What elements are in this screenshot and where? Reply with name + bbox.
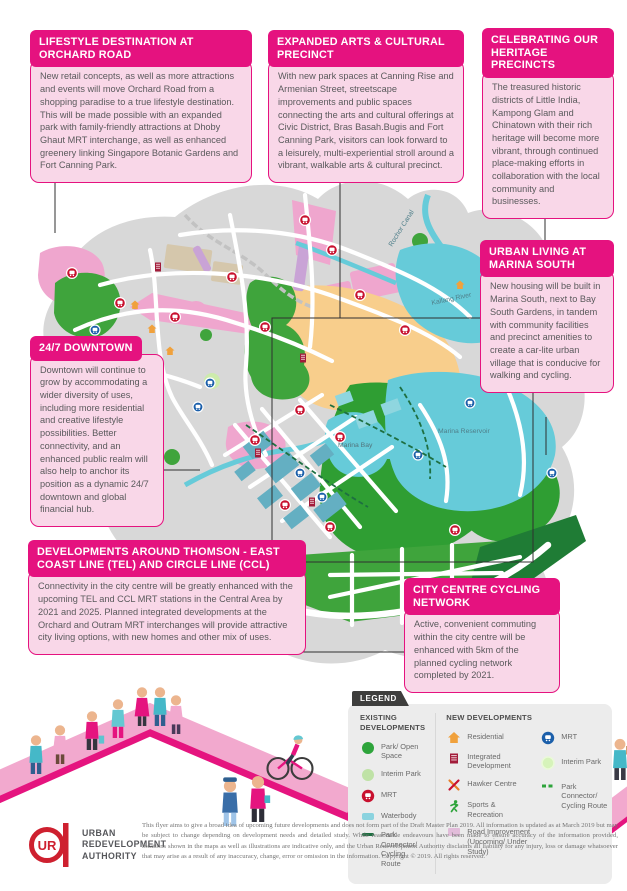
svg-text:UR: UR [38, 838, 57, 853]
callout-cycling-title: CITY CENTRE CYCLING NETWORK [404, 578, 560, 615]
legend-label: Interim Park [561, 755, 601, 767]
mrt-new-icon [540, 730, 556, 745]
callout-tel-ccl-body: Connectivity in the city centre will be … [28, 570, 306, 654]
callout-cycling: CITY CENTRE CYCLING NETWORK Active, conv… [404, 578, 560, 693]
callout-tel-ccl: DEVELOPMENTS AROUND THOMSON - EAST COAST… [28, 540, 306, 655]
callout-downtown: 24/7 DOWNTOWN Downtown will continue to … [30, 336, 164, 527]
legend-new-heading: NEW DEVELOPMENTS [446, 713, 612, 723]
legend-label: Hawker Centre [467, 777, 516, 789]
callout-heritage-body: The treasured historic districts of Litt… [482, 71, 614, 219]
ura-logo-mark: UR [28, 820, 74, 870]
police-officer-illustration [222, 777, 238, 826]
park-open-space-icon [360, 740, 376, 755]
callout-arts-title: EXPANDED ARTS & CULTURAL PRECINCT [268, 30, 464, 67]
legend-label: Residential [467, 730, 504, 742]
legend-label: Waterbody [381, 809, 416, 821]
interim-park-icon [360, 767, 376, 782]
callout-marina-south: URBAN LIVING AT MARINA SOUTH New housing… [480, 240, 614, 393]
flyer-page: { "colors": { "accent_magenta": "#E5127F… [0, 0, 627, 891]
integrated-development-icon [446, 750, 462, 765]
legend-label: MRT [381, 788, 397, 800]
callout-tel-ccl-title: DEVELOPMENTS AROUND THOMSON - EAST COAST… [28, 540, 306, 577]
legend-label: MRT [561, 730, 577, 742]
legend-title: LEGEND [352, 691, 409, 706]
callout-heritage: CELEBRATING OUR HERITAGE PRECINCTS The t… [482, 28, 614, 219]
callout-arts: EXPANDED ARTS & CULTURAL PRECINCT With n… [268, 30, 464, 183]
hawker-centre-icon [446, 777, 462, 792]
legend-label: Sports & Recreation [467, 798, 532, 819]
disclaimer-text: This flyer aims to give a broad idea of … [142, 821, 618, 863]
callout-heritage-title: CELEBRATING OUR HERITAGE PRECINCTS [482, 28, 614, 78]
sports-recreation-icon [446, 798, 462, 813]
callout-cycling-body: Active, convenient commuting within the … [404, 608, 560, 692]
legend-label: Interim Park [381, 767, 421, 779]
callout-marina-south-title: URBAN LIVING AT MARINA SOUTH [480, 240, 614, 277]
callout-orchard-title: LIFESTYLE DESTINATION AT ORCHARD ROAD [30, 30, 252, 67]
callout-arts-body: With new park spaces at Canning Rise and… [268, 60, 464, 183]
callout-orchard: LIFESTYLE DESTINATION AT ORCHARD ROAD Ne… [30, 30, 252, 183]
legend-label: Park/ Open Space [381, 740, 425, 761]
callout-downtown-body: Downtown will continue to grow by accomm… [30, 354, 164, 527]
label-marina-bay: Marina Bay [338, 442, 373, 449]
mrt-existing-icon [360, 788, 376, 803]
legend-label: Integrated Development [467, 750, 532, 771]
callout-marina-south-body: New housing will be built in Marina Sout… [480, 270, 614, 393]
legend-label: Park Connector/ Cycling Route [561, 780, 612, 811]
interim-park-new-icon [540, 755, 556, 770]
label-marina-reservoir: Marina Reservoir [438, 428, 490, 435]
callout-orchard-body: New retail concepts, as well as more att… [30, 60, 252, 183]
callout-downtown-title: 24/7 DOWNTOWN [30, 336, 142, 361]
cycling-route-new-icon [540, 780, 556, 791]
residential-icon [446, 730, 462, 744]
legend-existing-heading: EXISTING DEVELOPMENTS [360, 713, 425, 733]
